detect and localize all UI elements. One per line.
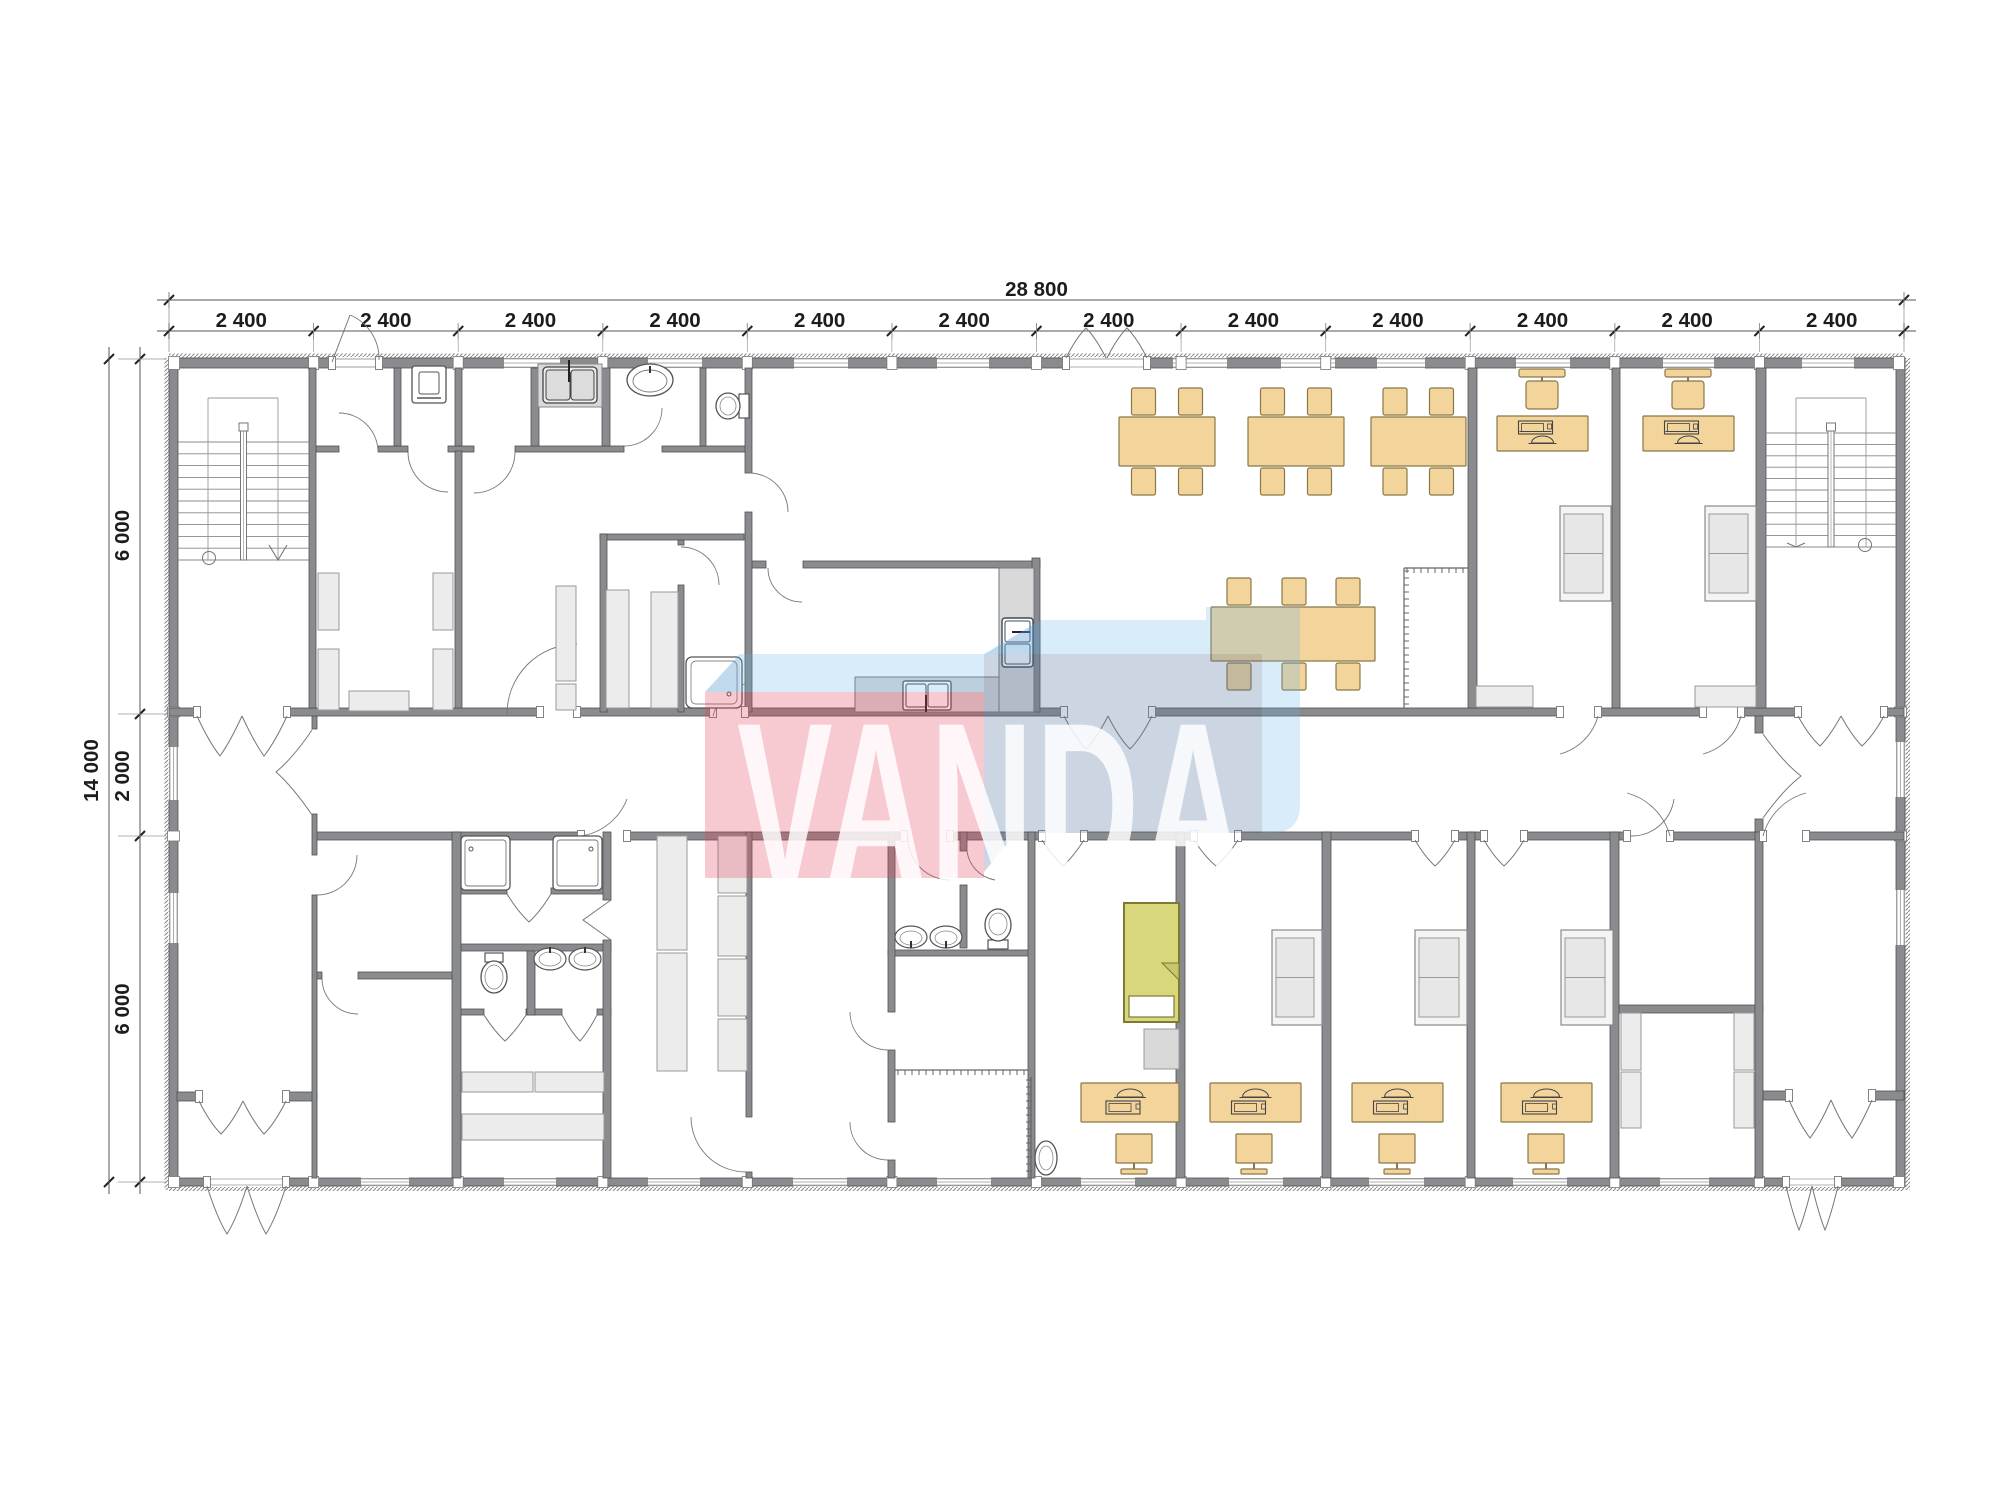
svg-text:2 400: 2 400 bbox=[505, 309, 556, 332]
svg-text:2 000: 2 000 bbox=[111, 750, 134, 801]
svg-text:2 400: 2 400 bbox=[794, 309, 845, 332]
svg-text:2 400: 2 400 bbox=[1517, 309, 1568, 332]
svg-text:2 400: 2 400 bbox=[1372, 309, 1423, 332]
svg-text:2 400: 2 400 bbox=[939, 309, 990, 332]
svg-text:6 000: 6 000 bbox=[111, 510, 134, 561]
svg-text:2 400: 2 400 bbox=[1228, 309, 1279, 332]
svg-text:14 000: 14 000 bbox=[80, 739, 103, 802]
svg-text:28 800: 28 800 bbox=[1005, 278, 1068, 301]
svg-text:2 400: 2 400 bbox=[1806, 309, 1857, 332]
svg-text:6 000: 6 000 bbox=[111, 983, 134, 1034]
svg-text:VANDA: VANDA bbox=[737, 673, 1247, 939]
svg-text:2 400: 2 400 bbox=[216, 309, 267, 332]
svg-text:2 400: 2 400 bbox=[649, 309, 700, 332]
svg-text:2 400: 2 400 bbox=[1661, 309, 1712, 332]
